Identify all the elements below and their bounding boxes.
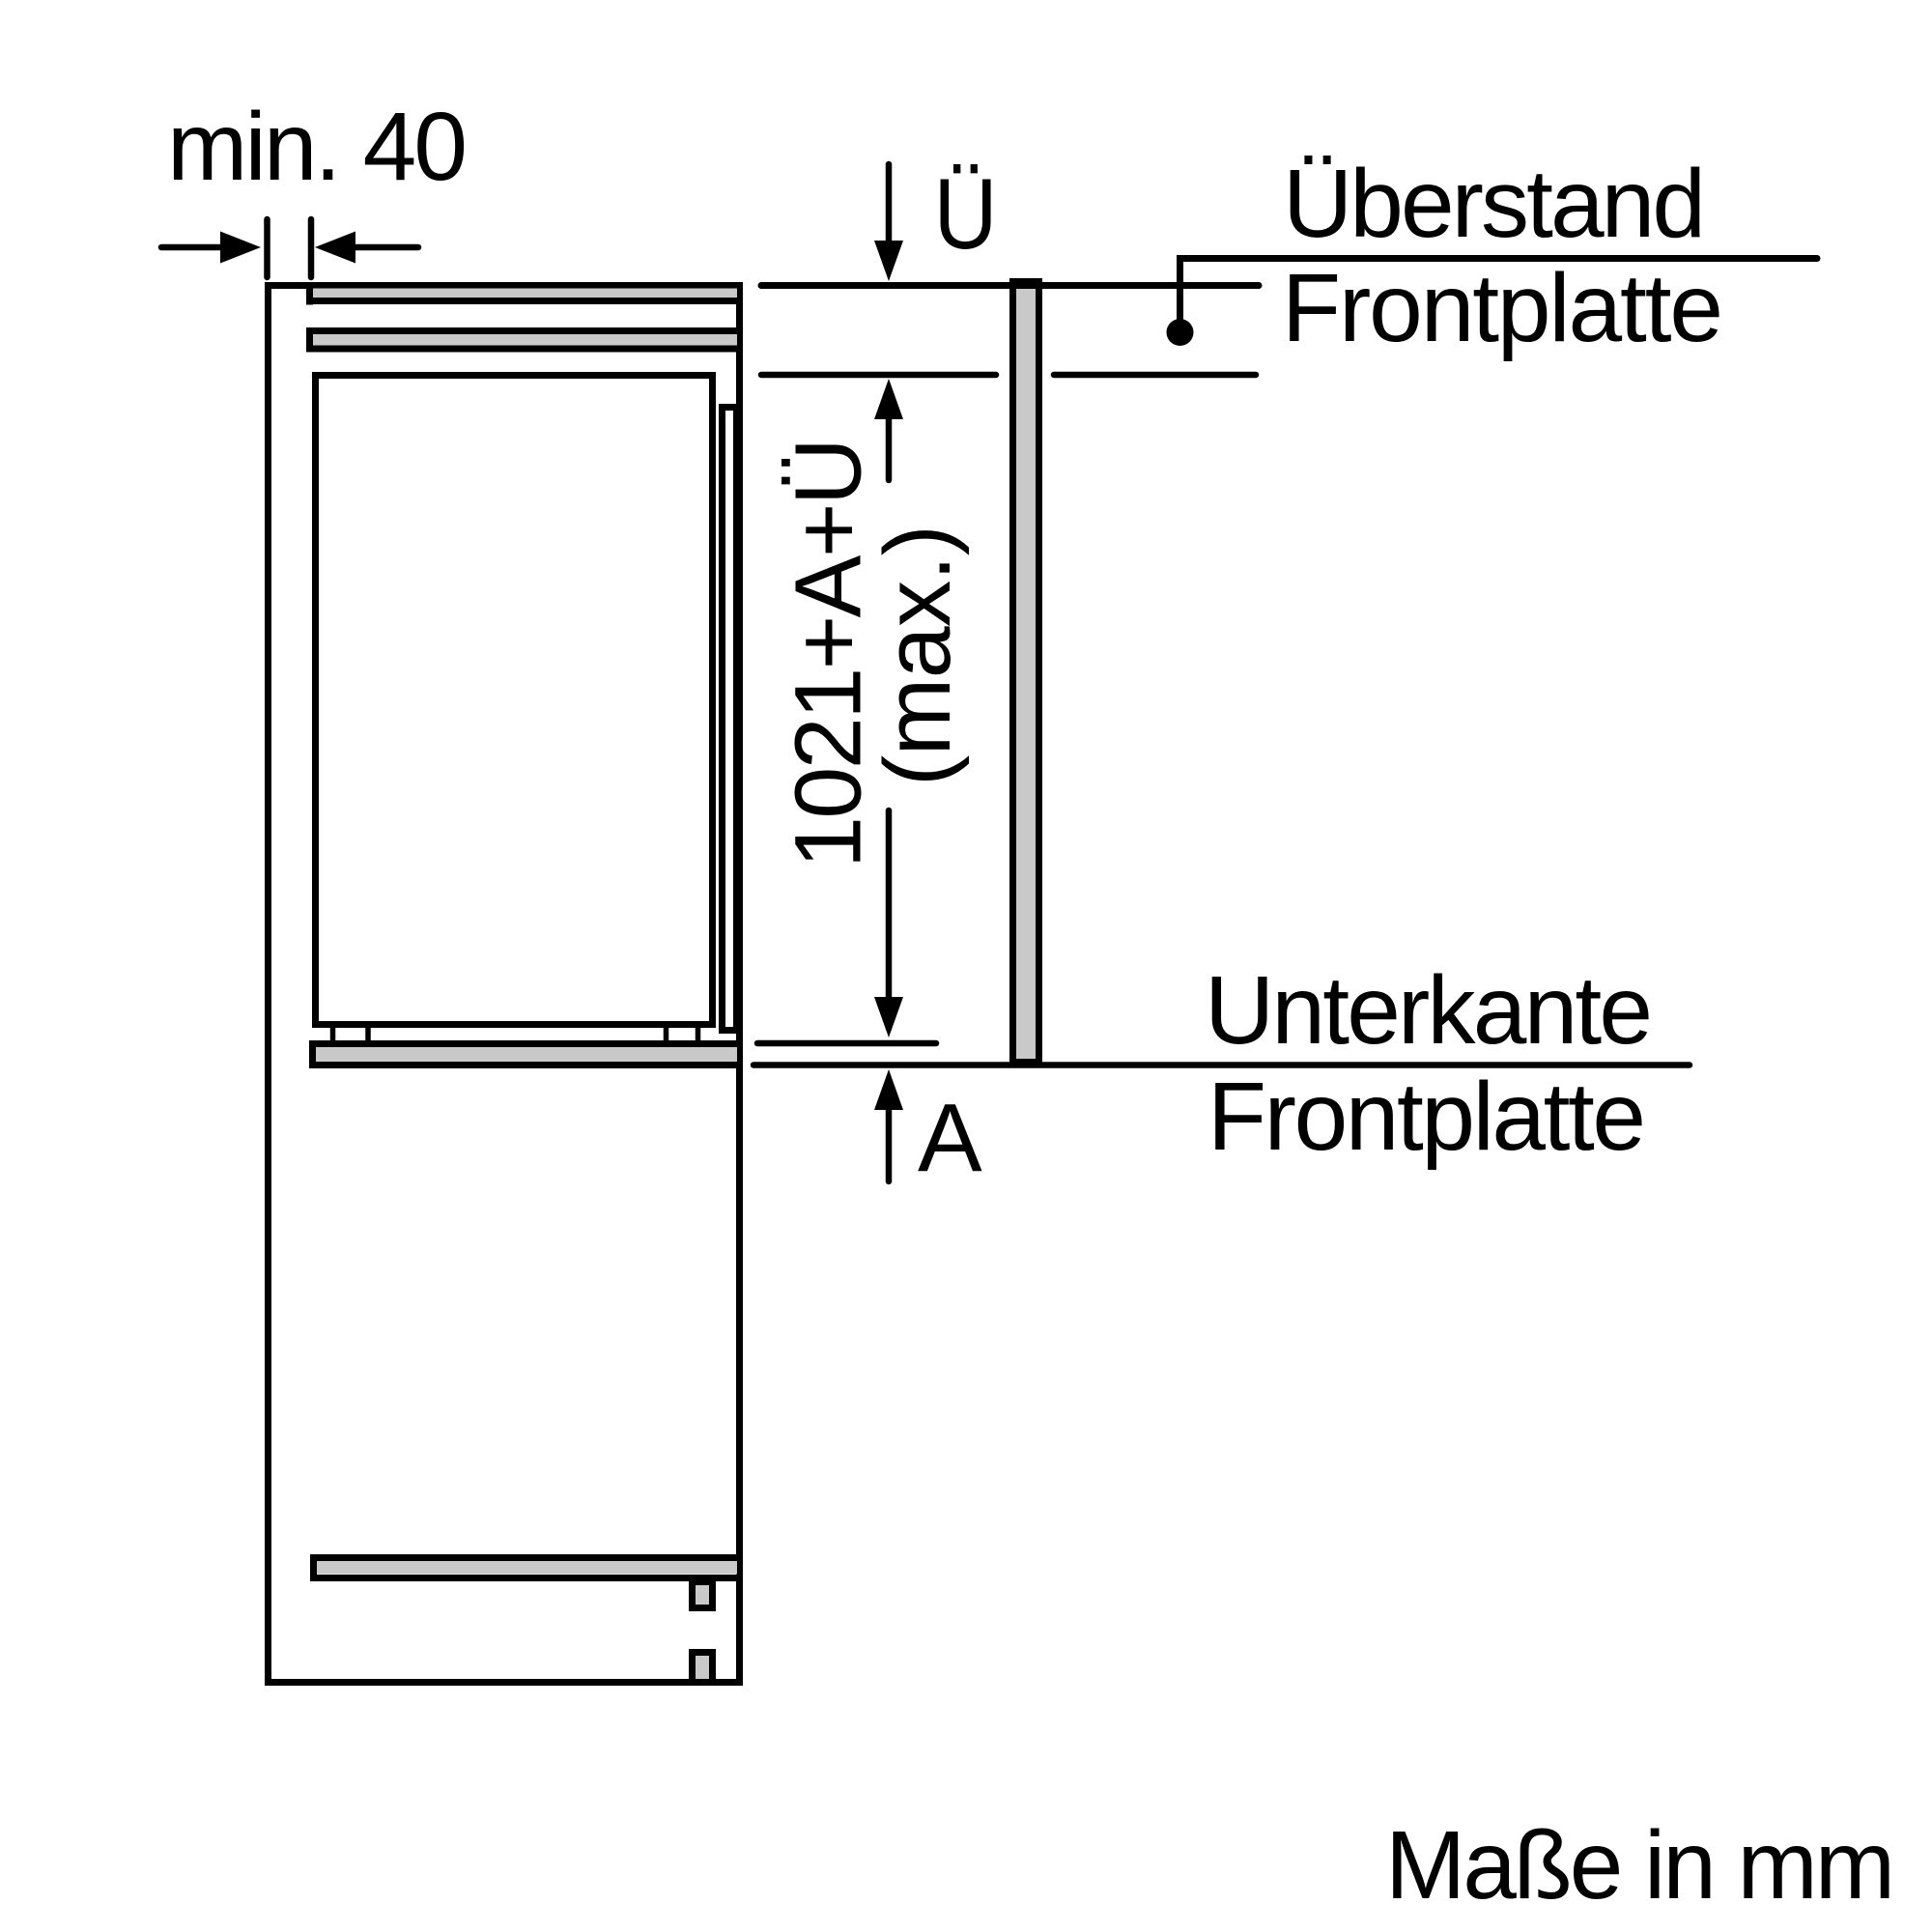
svg-text:(max.): (max.) bbox=[865, 525, 970, 786]
svg-text:Unterkante: Unterkante bbox=[1205, 956, 1653, 1065]
svg-text:Überstand: Überstand bbox=[1283, 150, 1706, 258]
svg-text:Ü: Ü bbox=[933, 157, 997, 270]
svg-text:min. 40: min. 40 bbox=[167, 93, 468, 201]
svg-text:Frontplatte: Frontplatte bbox=[1207, 1063, 1646, 1171]
svg-text:Frontplatte: Frontplatte bbox=[1282, 254, 1723, 362]
svg-text:A: A bbox=[918, 1084, 982, 1192]
svg-text:Maße in mm: Maße in mm bbox=[1385, 1811, 1895, 1919]
